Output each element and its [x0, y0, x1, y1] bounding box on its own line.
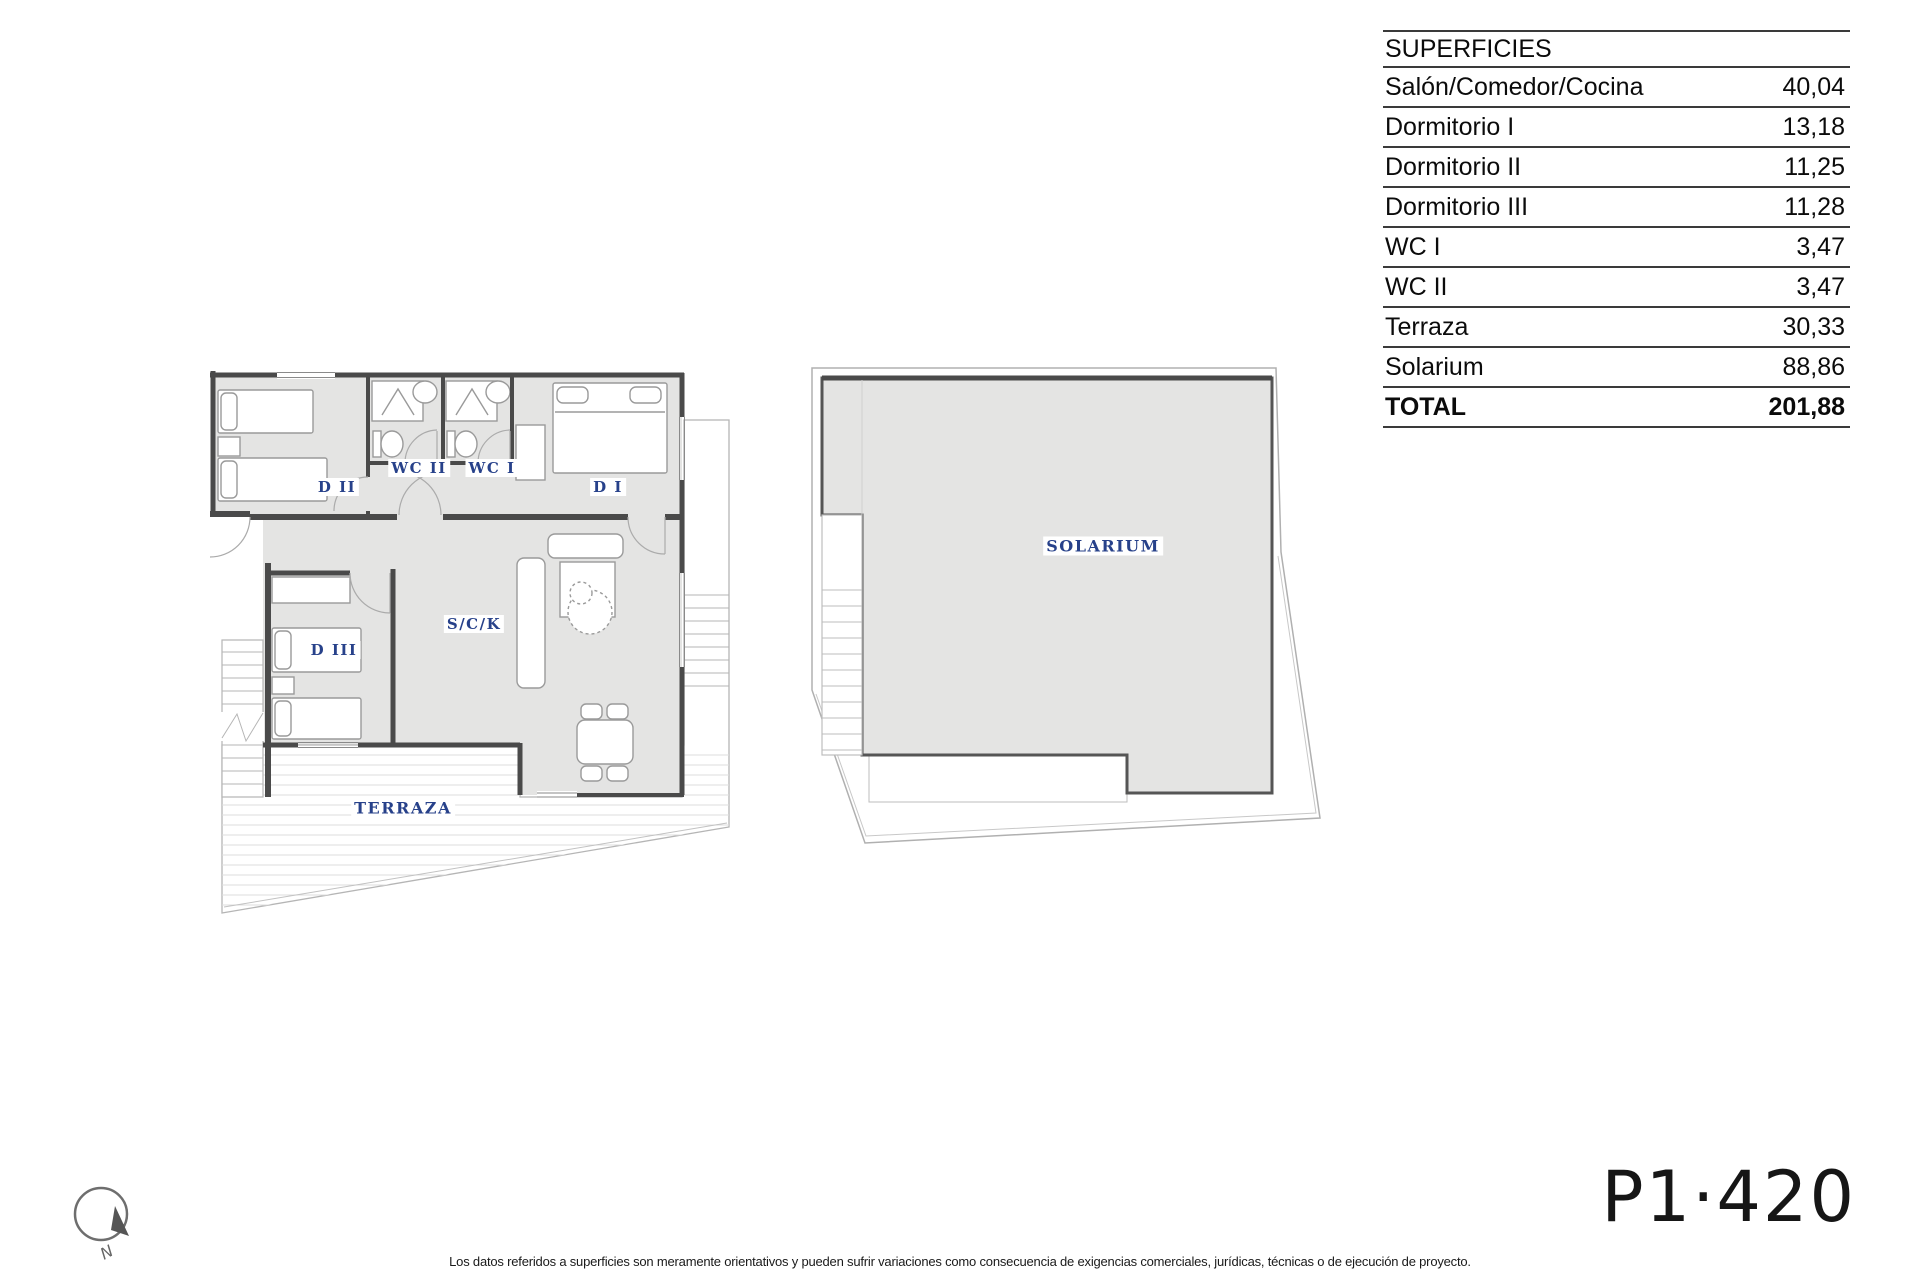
table-row: Terraza 30,33 [1383, 308, 1850, 348]
disclaimer-text: Los datos referidos a superficies son me… [0, 1254, 1920, 1269]
table-row: Dormitorio I 13,18 [1383, 108, 1850, 148]
label-solarium: SOLARIUM [1043, 537, 1163, 556]
table-row: WC II 3,47 [1383, 268, 1850, 308]
row-label: Dormitorio I [1385, 108, 1514, 146]
row-value: 30,33 [1782, 308, 1845, 346]
row-value: 3,47 [1796, 268, 1845, 306]
label-wc-2: WC II [388, 459, 450, 477]
table-row: Solarium 88,86 [1383, 348, 1850, 388]
solarium-plan [812, 368, 1320, 843]
row-label: Dormitorio III [1385, 188, 1528, 226]
row-label: Dormitorio II [1385, 148, 1521, 186]
row-label: TOTAL [1385, 388, 1466, 426]
plan-code: P1·420 [1601, 1156, 1856, 1238]
row-label: WC I [1385, 228, 1441, 266]
solarium-stairs [822, 515, 862, 755]
superficies-table: SUPERFICIES Salón/Comedor/Cocina 40,04 D… [1383, 30, 1850, 428]
row-label: WC II [1385, 268, 1448, 306]
label-dormitorio-2: D II [315, 478, 359, 496]
row-value: 13,18 [1782, 108, 1845, 146]
label-salon-comedor-cocina: S/C/K [444, 615, 504, 633]
table-row: WC I 3,47 [1383, 228, 1850, 268]
table-row: Salón/Comedor/Cocina 40,04 [1383, 68, 1850, 108]
row-label: Solarium [1385, 348, 1484, 386]
label-wc-1: WC I [465, 459, 518, 477]
exterior-stairs [221, 640, 264, 797]
row-value: 40,04 [1782, 68, 1845, 106]
row-value: 11,28 [1784, 188, 1845, 226]
row-value: 88,86 [1782, 348, 1845, 386]
row-value: 3,47 [1796, 228, 1845, 266]
solarium-notch [869, 755, 1127, 802]
label-terraza: TERRAZA [351, 799, 455, 818]
table-header: SUPERFICIES [1383, 32, 1850, 68]
table-row: Dormitorio II 11,25 [1383, 148, 1850, 188]
label-dormitorio-1: D I [590, 478, 626, 496]
row-label: Terraza [1385, 308, 1468, 346]
row-value: 11,25 [1784, 148, 1845, 186]
row-value: 201,88 [1769, 388, 1845, 426]
apartment-floor-plan [210, 370, 729, 913]
table-row-total: TOTAL 201,88 [1383, 388, 1850, 428]
north-compass: N [75, 1188, 129, 1264]
label-dormitorio-3: D III [308, 641, 361, 659]
row-label: Salón/Comedor/Cocina [1385, 68, 1643, 106]
solarium-surface [822, 378, 1272, 793]
table-row: Dormitorio III 11,28 [1383, 188, 1850, 228]
